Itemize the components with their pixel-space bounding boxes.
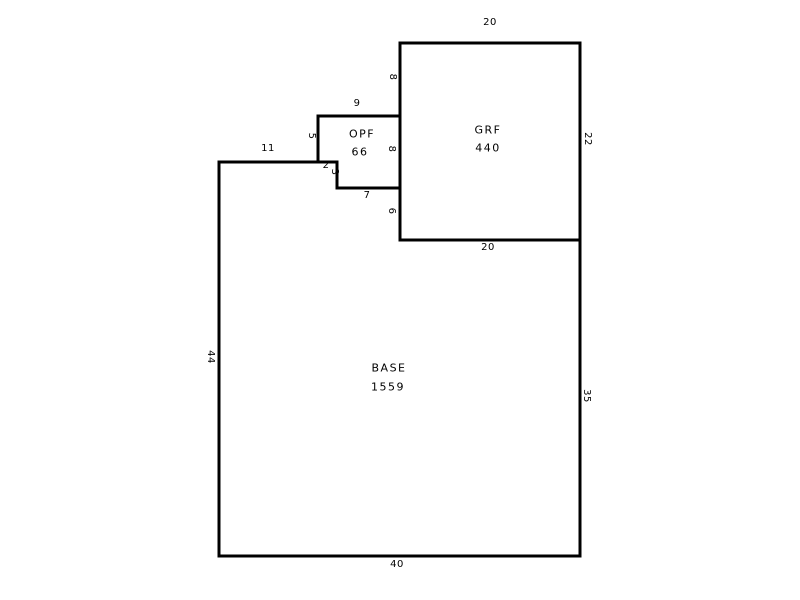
opf-area-value: 66 xyxy=(352,147,369,158)
dim-base-top: 11 xyxy=(261,144,275,154)
opf-area-name: OPF xyxy=(349,129,375,140)
base-area-name: BASE xyxy=(371,363,406,374)
dim-grf-right: 22 xyxy=(582,132,592,146)
dim-base-notch: 3 xyxy=(329,169,339,176)
dim-opf-left: 5 xyxy=(306,133,316,140)
dim-base-bottom: 40 xyxy=(390,560,404,570)
grf-area-value: 440 xyxy=(475,143,501,154)
grf-area-name: GRF xyxy=(475,125,502,136)
dim-opf-right: 8 xyxy=(386,146,396,153)
sketch-drawing xyxy=(0,0,800,600)
dim-base-left: 44 xyxy=(205,350,215,364)
base-area-value: 1559 xyxy=(371,382,405,393)
dim-opf-bottom: 7 xyxy=(364,191,371,201)
sketch-canvas: GRF 440 OPF 66 BASE 1559 20 9 11 2 7 20 … xyxy=(0,0,800,600)
dim-grf-left-upper: 8 xyxy=(387,74,397,81)
dim-grf-top: 20 xyxy=(483,18,497,28)
dim-grf-left-lower: 6 xyxy=(386,208,396,215)
dim-opf-top: 9 xyxy=(354,99,361,109)
dim-base-right: 35 xyxy=(581,389,591,403)
dim-grf-bottom: 20 xyxy=(481,243,495,253)
